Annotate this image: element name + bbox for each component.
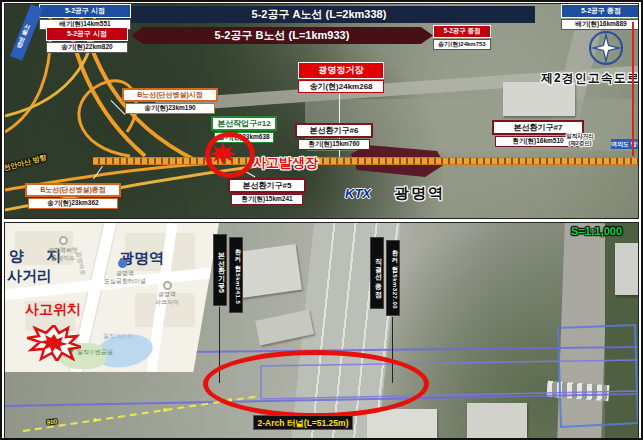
tunnel-label: 2-Arch 터널(L=51.25m)	[253, 415, 353, 430]
road-caption-line2: (제2경인)	[554, 140, 606, 147]
station-stop-label: 광명정거장 송기(현)24km268	[298, 62, 384, 93]
terminal-line2: 도심공항터미널	[95, 278, 155, 286]
b-start-infobox: B노선(단선병설)시점 송기(현)23km190	[122, 88, 218, 114]
accident-location-figure: 5-2공구 A노선 (L=2km338) 5-2공구 B노선 (L=1km933…	[0, 0, 643, 440]
waterside-park-label: 일직수변공원	[77, 349, 113, 357]
route-b-start-chainage: 송기(현)22km820	[46, 42, 128, 53]
route-a-banner-label: 5-2공구 A노선 (L=2km338)	[252, 8, 387, 20]
vent5-vertical-chainage: 환기(현)15km241.5	[229, 237, 243, 313]
poi-icon	[163, 281, 172, 290]
reservoir-label: 일직저수지	[103, 333, 133, 341]
station-name-label: 광명역	[394, 184, 445, 203]
road-caption-label: 일직사거리 (제2경인)	[554, 133, 606, 147]
vent5-chainage: 환기(현)15km241	[231, 194, 303, 205]
highway-name-label: 제2경인고속도로	[541, 70, 639, 87]
scale-label: S=1:1,000	[571, 225, 622, 237]
accident-location-label: 사고위치	[25, 301, 81, 319]
route-b-end-flag: 5-2공구 종점 송기(현)24km753	[433, 25, 491, 50]
accident-starburst-icon	[210, 143, 236, 165]
accident-site-label: 사고발생장	[253, 154, 318, 172]
route-a-end-chainage: 배기(현)16km889	[561, 19, 639, 30]
yangji-intersection-label-2: 사거리	[7, 267, 52, 286]
accident-starburst-icon	[27, 325, 81, 361]
route-a-banner: 5-2공구 A노선 (L=2km338)	[103, 6, 535, 23]
bottom-aerial-panel: 800 양 지 사거리 광명역 광명역써밋 플레이스 광명역 도심공항터미널	[4, 222, 639, 439]
station-stop-title: 광명정거장	[298, 62, 384, 79]
rail-line	[93, 157, 639, 165]
vent5-infobox: 본선환기구#5 환기(현)15km241	[228, 178, 306, 205]
station-stop-chainage: 송기(현)24km268	[298, 80, 384, 93]
route-b-banner-label: 5-2공구 B노선 (L=1km933)	[215, 29, 350, 41]
route-b-end-chainage: 송기(현)24km753	[433, 39, 491, 50]
route-a-start-title: 5-2공구 시점	[39, 4, 131, 18]
b-end-infobox-title: B노선(단선병설)종점	[25, 183, 121, 197]
top-aerial-panel: 5-2공구 A노선 (L=2km338) 5-2공구 B노선 (L=1km933…	[4, 3, 639, 219]
vent6-infobox: 본선환기구#6 환기(현)15km760	[295, 123, 373, 150]
vent6-chainage: 환기(현)15km760	[298, 139, 370, 150]
reference-line	[632, 22, 634, 156]
vent5-title: 본선환기구#5	[228, 178, 306, 193]
b-start-infobox-title: B노선(단선병설)시점	[122, 88, 218, 102]
route-b-start-title: 5-2공구 시점	[46, 27, 128, 41]
junction-vertical-title: 직결선 종점	[370, 237, 384, 309]
airport-terminal-icon	[118, 259, 127, 268]
workshaft12-title: 본선작업구#12	[211, 116, 277, 131]
route-a-end-title: 5-2공구 종점	[561, 4, 639, 18]
b-end-infobox: B노선(단선병설)종점 송기(현)23km362	[25, 183, 121, 209]
route-b-end-title: 5-2공구 종점	[433, 25, 491, 38]
junction-vertical-chainage: 환기(현)15km327.00	[386, 240, 400, 316]
route-a-end-flag: 5-2공구 종점 배기(현)16km889	[561, 4, 639, 30]
direction-right-tag: 여의도 방향	[611, 139, 639, 149]
route-b-banner: 5-2공구 B노선 (L=1km933)	[131, 27, 433, 44]
terminal-label: 광명역 도심공항터미널	[95, 270, 155, 285]
vent6-title: 본선환기구#6	[295, 123, 373, 138]
poi-icon	[59, 236, 68, 245]
b-start-infobox-chainage: 송기(현)23km190	[125, 103, 215, 114]
park-xi-line2: 파크자이	[145, 299, 189, 307]
compass-icon	[588, 30, 624, 66]
vent5-vertical-title: 본선환기구#5	[213, 234, 227, 306]
route-b-start-flag: 5-2공구 시점 송기(현)22km820	[46, 27, 128, 53]
ktx-logo: KTX	[345, 186, 371, 201]
accident-ellipse-marker	[203, 350, 429, 418]
b-end-infobox-chainage: 송기(현)23km362	[28, 198, 118, 209]
terminal-line1: 광명역	[95, 270, 155, 278]
park-xi-label: 광명역 파크자이	[145, 291, 189, 306]
park-xi-line1: 광명역	[145, 291, 189, 299]
